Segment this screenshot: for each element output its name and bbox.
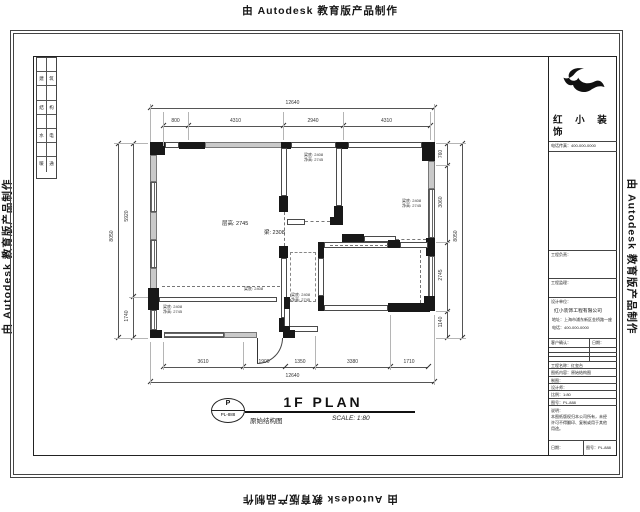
dim-label: 12640 xyxy=(270,100,315,106)
divider xyxy=(549,368,617,369)
extension-line xyxy=(315,336,316,370)
wall-segment xyxy=(150,268,157,290)
column xyxy=(279,246,288,258)
dashed-opening xyxy=(305,221,330,222)
dim-label: 2940 xyxy=(283,118,343,124)
title-block: 红 小 装 饰 电话传真：400-000-0000 工程负责： 工程监理： 设计… xyxy=(548,56,617,456)
extension-line xyxy=(150,104,151,142)
extension-line xyxy=(436,143,466,144)
column xyxy=(179,142,205,149)
brand-name-line2: 饰 xyxy=(553,124,563,138)
extension-line xyxy=(436,311,450,312)
signature-row xyxy=(37,86,56,100)
dim-label: 5920 xyxy=(123,201,131,231)
signature-row: 建筑 xyxy=(37,72,56,86)
window xyxy=(150,240,157,268)
supervisor-row: 工程监理： xyxy=(551,280,571,286)
divider xyxy=(549,361,617,362)
dim-label: 1350 xyxy=(285,359,315,365)
bubble-divider xyxy=(211,410,245,411)
signature-row xyxy=(37,58,56,72)
client-confirm-label: 客户确认： xyxy=(551,340,571,346)
company-phone: 电话：400-000-0000 xyxy=(552,325,589,331)
divider xyxy=(583,440,584,456)
extension-line xyxy=(430,112,431,140)
bubble-letter: P xyxy=(211,400,245,407)
divider xyxy=(549,151,617,152)
dim-label: 1710 xyxy=(390,359,428,365)
wall-segment xyxy=(287,219,305,225)
dim-label: 2745 xyxy=(437,260,445,290)
column xyxy=(283,330,295,338)
window xyxy=(428,189,435,238)
drawing-subtitle: 原始结构图 xyxy=(250,415,283,425)
dim-label: 1740 xyxy=(123,301,131,331)
wall-segment xyxy=(318,258,324,296)
dim-label: 8050 xyxy=(108,221,116,251)
bottom-number-cell: 图号：PL-888 xyxy=(586,445,611,451)
signature-row xyxy=(37,143,56,157)
dim-line xyxy=(150,108,435,109)
room-beam-label: 梁底: 2408 xyxy=(244,287,263,292)
window xyxy=(164,332,224,338)
signature-row: 水电 xyxy=(37,129,56,143)
divider xyxy=(549,347,617,348)
extension-line xyxy=(436,242,450,243)
column xyxy=(279,196,288,212)
wall-segment xyxy=(428,161,435,189)
column xyxy=(422,142,435,161)
extension-line xyxy=(114,143,148,144)
beam-height-label: 梁: 2308 xyxy=(264,228,285,236)
room-beam-label: 梁底: 2408净高: 2745 xyxy=(291,293,310,302)
dashed-line xyxy=(420,250,421,303)
date-label: 日期： xyxy=(592,340,604,346)
title-underline xyxy=(245,411,415,413)
dim-line xyxy=(150,382,435,383)
divider xyxy=(589,338,590,361)
bottom-date-cell: 日期： xyxy=(551,445,563,451)
room-beam-label: 梁底: 2408净高: 2745 xyxy=(402,199,421,208)
divider xyxy=(549,376,617,377)
contact-row: 电话传真：400-000-0000 xyxy=(551,143,596,149)
watermark-bottom: 由 Autodesk 教育版产品制作 xyxy=(0,492,640,507)
window xyxy=(150,310,157,330)
divider xyxy=(549,352,617,353)
wall-segment xyxy=(159,297,277,302)
extension-line xyxy=(129,297,148,298)
extension-line xyxy=(436,165,450,166)
signature-strip: 建筑 结构 水电 暖通 xyxy=(36,57,57,179)
drawing-title: 1F PLAN xyxy=(248,394,398,410)
wall-segment xyxy=(348,142,422,148)
project-lead-row: 工程负责： xyxy=(551,252,571,258)
divider xyxy=(549,390,617,391)
extension-line xyxy=(188,112,189,140)
dim-label: 4310 xyxy=(343,118,430,124)
divider xyxy=(549,398,617,399)
signature-row: 结构 xyxy=(37,101,56,115)
notes-line: 用途。 xyxy=(551,426,563,432)
ceiling-height-label: 层高: 2745 xyxy=(222,219,248,227)
watermark-right: 由 Autodesk 教育版产品制作 xyxy=(625,157,640,357)
dim-label: 12640 xyxy=(270,373,315,379)
drawing-sheet: 由 Autodesk 教育版产品制作 由 Autodesk 教育版产品制作 由 … xyxy=(0,0,640,512)
window xyxy=(150,182,157,212)
column xyxy=(150,330,162,338)
divider xyxy=(549,338,617,339)
wall-segment xyxy=(291,142,336,148)
wall-segment xyxy=(400,242,428,248)
extension-line xyxy=(436,338,466,339)
extension-line xyxy=(283,112,284,140)
dashed-opening xyxy=(396,239,426,240)
wall-segment xyxy=(165,142,179,148)
signature-row: 暖通 xyxy=(37,157,56,171)
dim-line xyxy=(118,143,119,338)
wall-segment xyxy=(150,212,157,240)
bubble-number: PL-888 xyxy=(211,412,245,417)
divider xyxy=(549,141,617,142)
divider xyxy=(549,383,617,384)
room-beam-label: 梁底: 2408净高: 2745 xyxy=(304,153,323,162)
column xyxy=(334,206,343,225)
column xyxy=(342,234,364,242)
watermark-top: 由 Autodesk 教育版产品制作 xyxy=(0,3,640,18)
extension-line xyxy=(163,342,164,370)
dim-label: 4310 xyxy=(188,118,283,124)
company-logo-bird-icon xyxy=(562,64,606,100)
wall-segment xyxy=(205,142,282,148)
room-beam-label: 梁底: 2408净高: 2745 xyxy=(163,305,182,314)
wall-segment xyxy=(324,305,388,311)
dim-label: 800 xyxy=(163,118,188,124)
dim-line xyxy=(163,126,430,127)
company-address: 地址：上海市浦东新区金桥路一座 xyxy=(552,317,612,323)
dim-label: 3610 xyxy=(163,359,243,365)
column xyxy=(148,288,159,310)
extension-line xyxy=(343,112,344,140)
extension-line xyxy=(434,315,435,385)
divider xyxy=(549,356,617,357)
drawing-scale: SCALE: 1:80 xyxy=(332,415,370,422)
dim-label: 8050 xyxy=(452,221,460,251)
column xyxy=(388,303,430,312)
dim-line xyxy=(133,143,134,338)
wall-segment xyxy=(150,155,157,182)
wall-segment xyxy=(224,332,257,338)
company-name: 红小装饰工程有限公司 xyxy=(554,307,602,314)
design-firm-header: 设计单位： xyxy=(551,299,571,305)
dashed-opening xyxy=(330,245,388,246)
signature-row xyxy=(37,115,56,129)
extension-line xyxy=(114,338,148,339)
column xyxy=(388,240,400,248)
extension-line xyxy=(150,342,151,385)
wall-segment xyxy=(281,148,287,196)
wall-segment xyxy=(336,148,342,206)
dim-label: 3060 xyxy=(437,187,445,217)
extension-line xyxy=(390,315,391,370)
extension-line xyxy=(163,112,164,146)
divider xyxy=(549,297,617,298)
divider xyxy=(549,278,617,279)
window xyxy=(428,256,435,298)
dim-label: 1900 xyxy=(243,359,285,365)
divider xyxy=(549,405,617,406)
extension-line xyxy=(434,104,435,142)
extension-line xyxy=(243,342,244,370)
dim-label: 3380 xyxy=(315,359,390,365)
divider xyxy=(549,250,617,251)
dim-line xyxy=(462,143,463,338)
